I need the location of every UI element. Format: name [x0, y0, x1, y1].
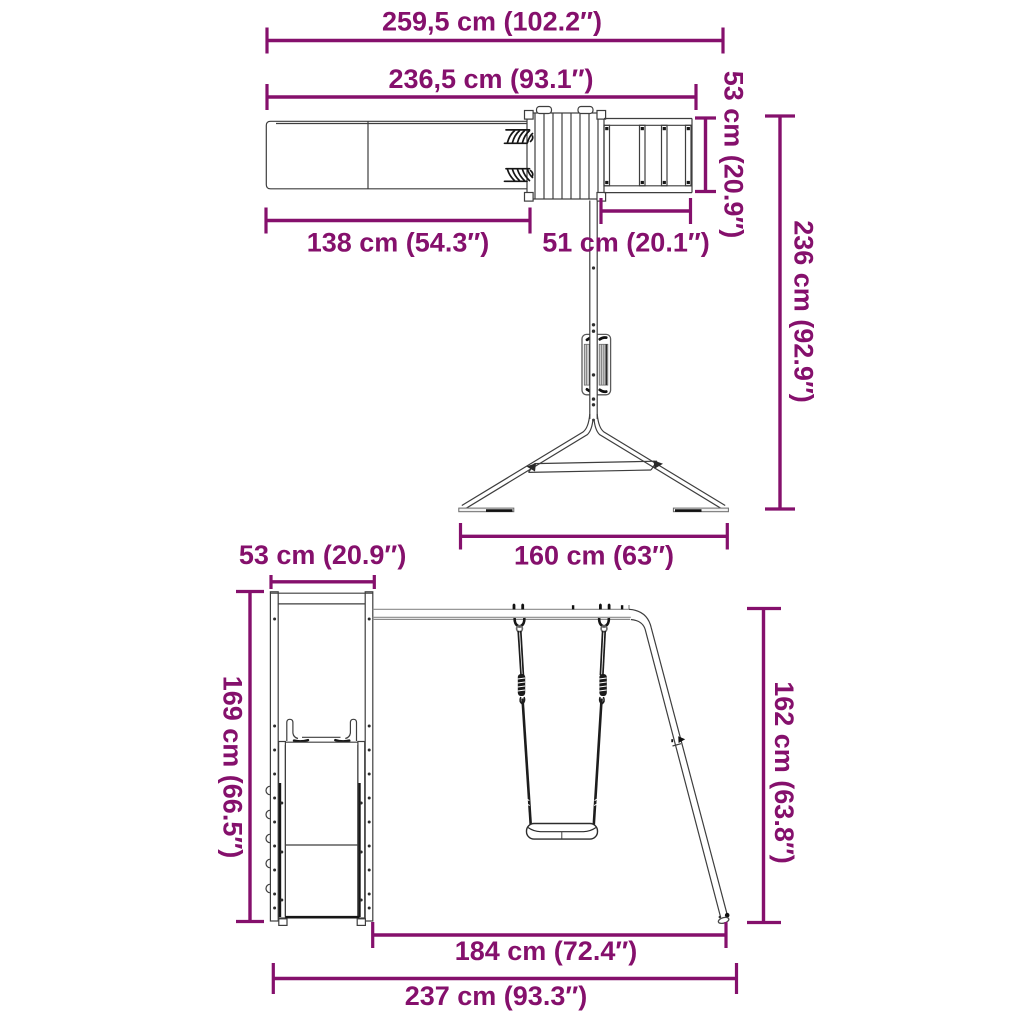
svg-text:236 cm (92.9″): 236 cm (92.9″) [788, 220, 818, 403]
svg-text:160 cm (63″): 160 cm (63″) [514, 541, 674, 571]
svg-text:162 cm (63.8″): 162 cm (63.8″) [769, 681, 799, 864]
svg-text:237 cm (93.3″): 237 cm (93.3″) [405, 981, 588, 1011]
svg-text:51 cm (20.1″): 51 cm (20.1″) [542, 228, 710, 258]
svg-text:138 cm (54.3″): 138 cm (54.3″) [307, 228, 490, 258]
svg-text:53 cm (20.9″): 53 cm (20.9″) [239, 540, 407, 570]
svg-text:53 cm (20.9″): 53 cm (20.9″) [718, 71, 748, 239]
svg-text:259,5 cm (102.2″): 259,5 cm (102.2″) [382, 7, 602, 37]
svg-text:184 cm (72.4″): 184 cm (72.4″) [455, 936, 638, 966]
svg-text:169 cm (66.5″): 169 cm (66.5″) [217, 676, 247, 859]
svg-text:236,5 cm (93.1″): 236,5 cm (93.1″) [388, 64, 593, 94]
